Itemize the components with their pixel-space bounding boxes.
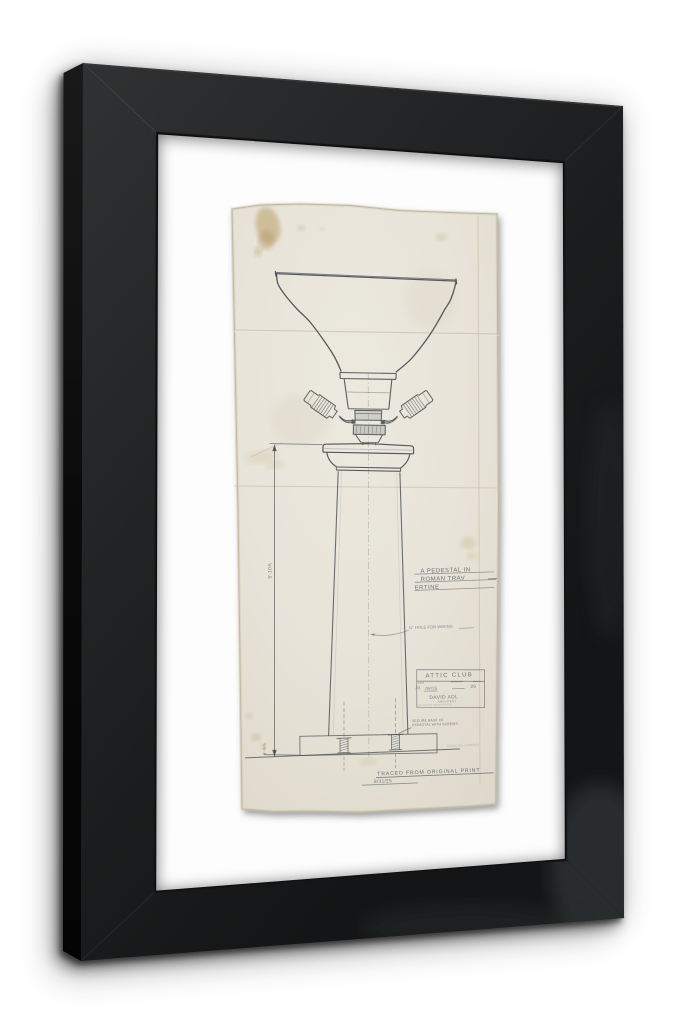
svg-text:3'-9⅞: 3'-9⅞ <box>262 743 267 755</box>
svg-text:JW/35: JW/35 <box>424 686 437 691</box>
svg-text:#3: #3 <box>415 685 421 690</box>
svg-text:29: 29 <box>470 684 476 689</box>
svg-text:5'-10⅞: 5'-10⅞ <box>267 562 273 579</box>
